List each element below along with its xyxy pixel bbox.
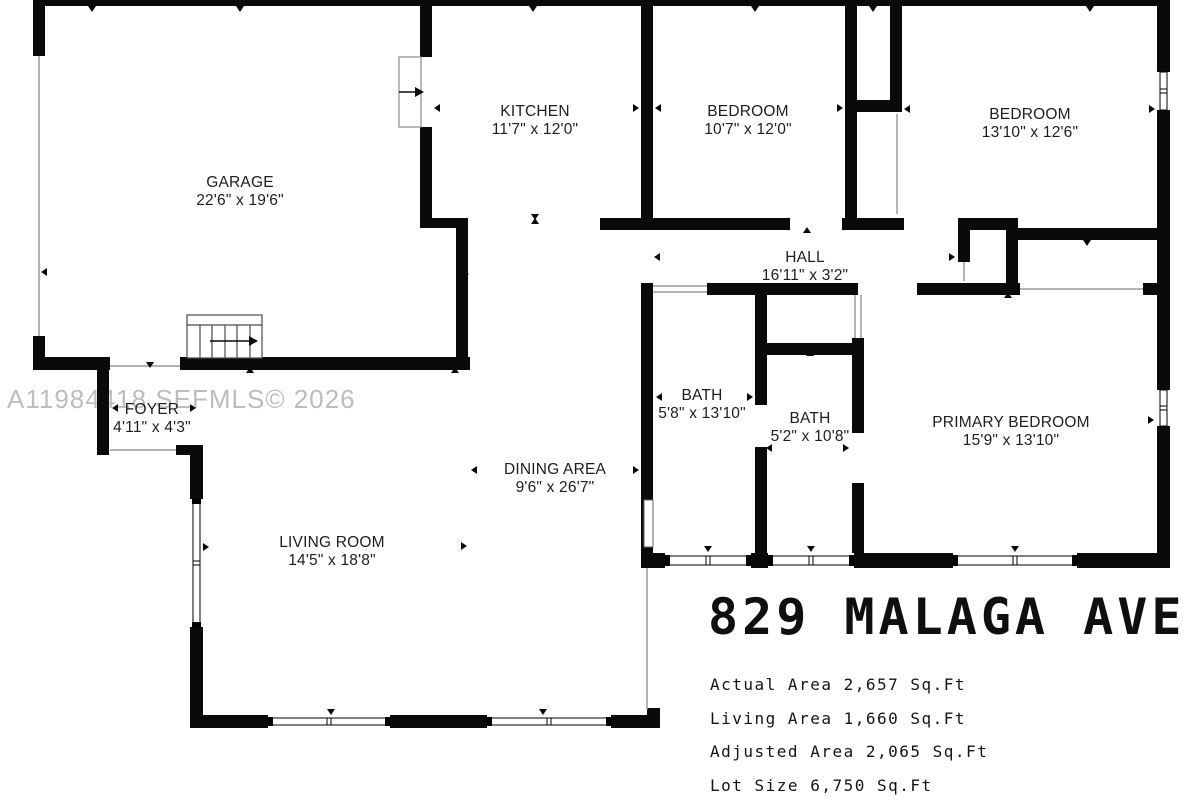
stairs-icon — [187, 315, 262, 358]
room-dimensions: 5'2" x 10'8" — [771, 428, 850, 446]
room-label-bedroom-1: BEDROOM 10'7" x 12'0" — [704, 103, 792, 138]
room-name: BEDROOM — [989, 106, 1071, 123]
room-dimensions: 22'6" x 19'6" — [196, 192, 284, 210]
room-label-kitchen: KITCHEN 11'7" x 12'0" — [492, 103, 578, 138]
room-dimensions: 4'11" x 4'3" — [113, 419, 191, 437]
address-title: 829 MALAGA AVE — [708, 588, 1185, 646]
room-name: FOYER — [125, 401, 179, 418]
stat-lot-size: Lot Size 6,750 Sq.Ft — [710, 769, 988, 800]
room-name: DINING AREA — [504, 461, 606, 478]
room-dimensions: 9'6" x 26'7" — [504, 479, 606, 497]
window-symbol — [190, 499, 203, 627]
room-name: GARAGE — [206, 174, 274, 191]
room-name: PRIMARY BEDROOM — [932, 414, 1089, 431]
window-symbol — [644, 500, 653, 547]
room-label-foyer: FOYER 4'11" x 4'3" — [113, 401, 191, 436]
room-dimensions: 10'7" x 12'0" — [704, 121, 792, 139]
room-dimensions: 15'9" x 13'10" — [932, 432, 1089, 450]
door-swing-icon — [399, 57, 424, 127]
room-label-living-room: LIVING ROOM 14'5" x 18'8" — [279, 534, 385, 569]
floorplan-page: A11984418 SEFMLS© 2026 — [0, 0, 1200, 800]
stat-living-area: Living Area 1,660 Sq.Ft — [710, 702, 988, 736]
room-name: HALL — [785, 249, 825, 266]
stat-actual-area: Actual Area 2,657 Sq.Ft — [710, 668, 988, 702]
room-dimensions: 5'8" x 13'10" — [658, 405, 746, 423]
room-dimensions: 14'5" x 18'8" — [279, 552, 385, 570]
room-label-dining-area: DINING AREA 9'6" x 26'7" — [504, 461, 606, 496]
room-label-primary-bedroom: PRIMARY BEDROOM 15'9" x 13'10" — [932, 414, 1089, 449]
room-dimensions: 11'7" x 12'0" — [492, 121, 578, 139]
area-stats: Actual Area 2,657 Sq.Ft Living Area 1,66… — [710, 668, 988, 800]
room-label-bath-2: BATH 5'2" x 10'8" — [771, 410, 850, 445]
room-label-bedroom-2: BEDROOM 13'10" x 12'6" — [982, 106, 1078, 141]
room-name: BEDROOM — [707, 103, 789, 120]
window-symbol — [768, 553, 854, 568]
stat-adjusted-area: Adjusted Area 2,065 Sq.Ft — [710, 735, 988, 769]
window-symbol — [1157, 390, 1170, 426]
room-name: LIVING ROOM — [279, 534, 385, 551]
room-name: BATH — [789, 410, 830, 427]
window-symbol — [665, 553, 751, 568]
room-label-garage: GARAGE 22'6" x 19'6" — [196, 174, 284, 209]
room-dimensions: 13'10" x 12'6" — [982, 124, 1078, 142]
room-label-hall: HALL 16'11" x 3'2" — [762, 249, 848, 284]
window-symbol — [268, 715, 390, 728]
window-symbol — [1157, 72, 1170, 110]
window-symbol — [487, 715, 611, 728]
room-dimensions: 16'11" x 3'2" — [762, 267, 848, 285]
room-name: KITCHEN — [500, 103, 569, 120]
room-name: BATH — [681, 387, 722, 404]
window-symbol — [953, 553, 1077, 568]
room-label-bath-1: BATH 5'8" x 13'10" — [658, 387, 746, 422]
